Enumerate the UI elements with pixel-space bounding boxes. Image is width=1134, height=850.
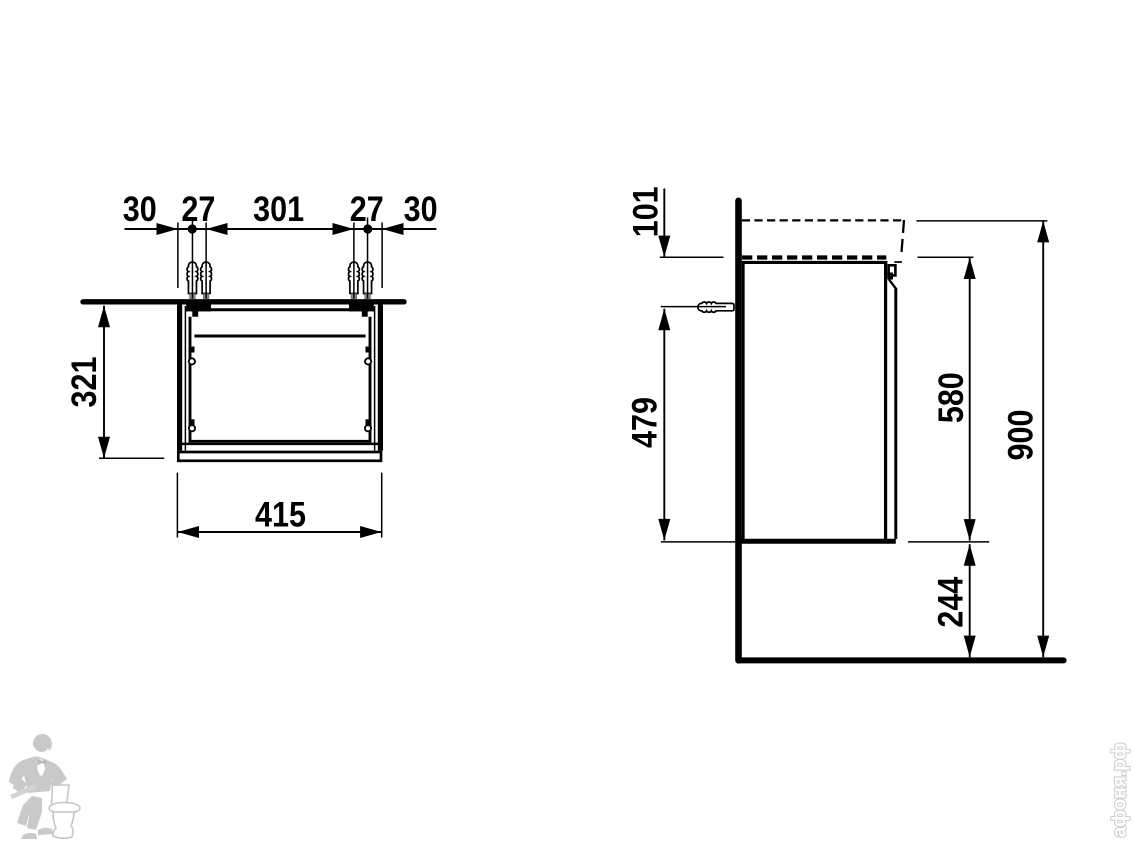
svg-text:321: 321 xyxy=(65,357,105,408)
svg-text:27: 27 xyxy=(350,190,384,230)
svg-text:301: 301 xyxy=(253,190,304,230)
svg-text:479: 479 xyxy=(625,397,665,448)
svg-text:244: 244 xyxy=(932,576,972,627)
svg-text:900: 900 xyxy=(1002,410,1042,461)
svg-text:580: 580 xyxy=(932,372,972,423)
svg-text:30: 30 xyxy=(404,190,438,230)
svg-text:афоня.рф: афоня.рф xyxy=(1110,743,1131,838)
svg-text:27: 27 xyxy=(181,190,215,230)
svg-text:415: 415 xyxy=(255,495,306,535)
svg-text:30: 30 xyxy=(123,190,157,230)
svg-text:101: 101 xyxy=(626,186,666,237)
